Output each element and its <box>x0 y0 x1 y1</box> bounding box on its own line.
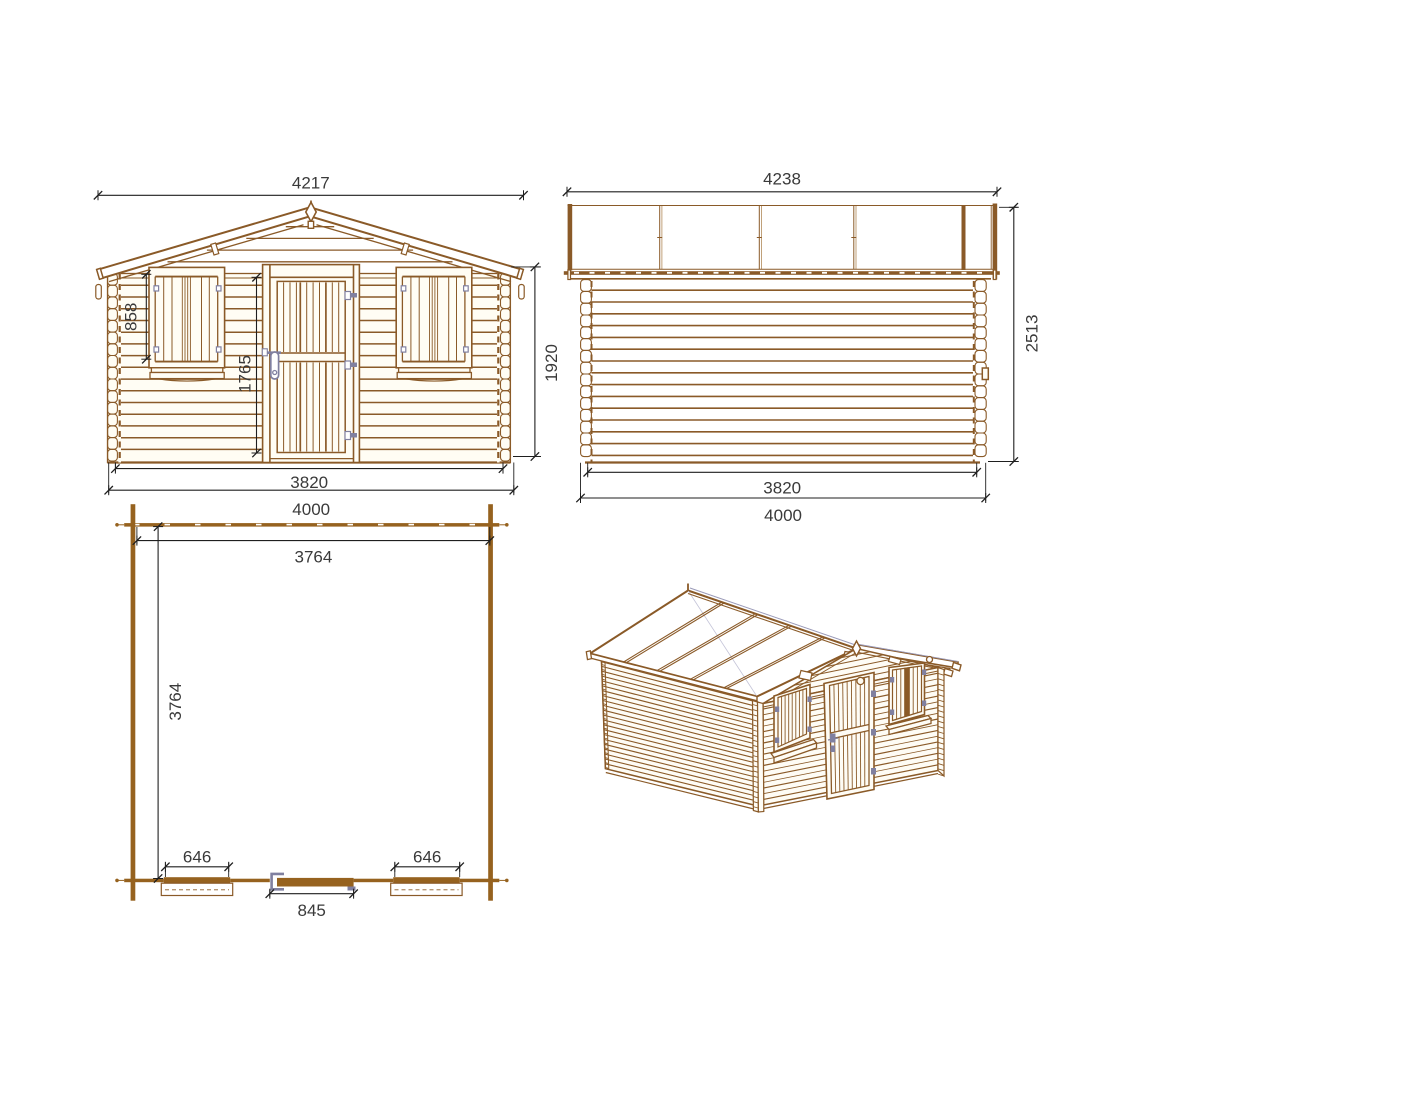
svg-text:2513: 2513 <box>1023 315 1042 353</box>
svg-text:3820: 3820 <box>763 478 801 497</box>
svg-text:4000: 4000 <box>764 506 802 525</box>
svg-text:646: 646 <box>413 847 441 866</box>
svg-text:3764: 3764 <box>294 547 332 566</box>
svg-text:4238: 4238 <box>763 170 801 189</box>
svg-text:1920: 1920 <box>542 344 561 382</box>
svg-text:646: 646 <box>183 847 211 866</box>
svg-text:1765: 1765 <box>236 355 255 393</box>
svg-text:858: 858 <box>122 303 141 331</box>
svg-text:845: 845 <box>298 901 326 920</box>
svg-text:4217: 4217 <box>292 173 330 192</box>
svg-text:4000: 4000 <box>292 500 330 519</box>
svg-text:3764: 3764 <box>166 683 185 721</box>
svg-text:3820: 3820 <box>290 473 328 492</box>
